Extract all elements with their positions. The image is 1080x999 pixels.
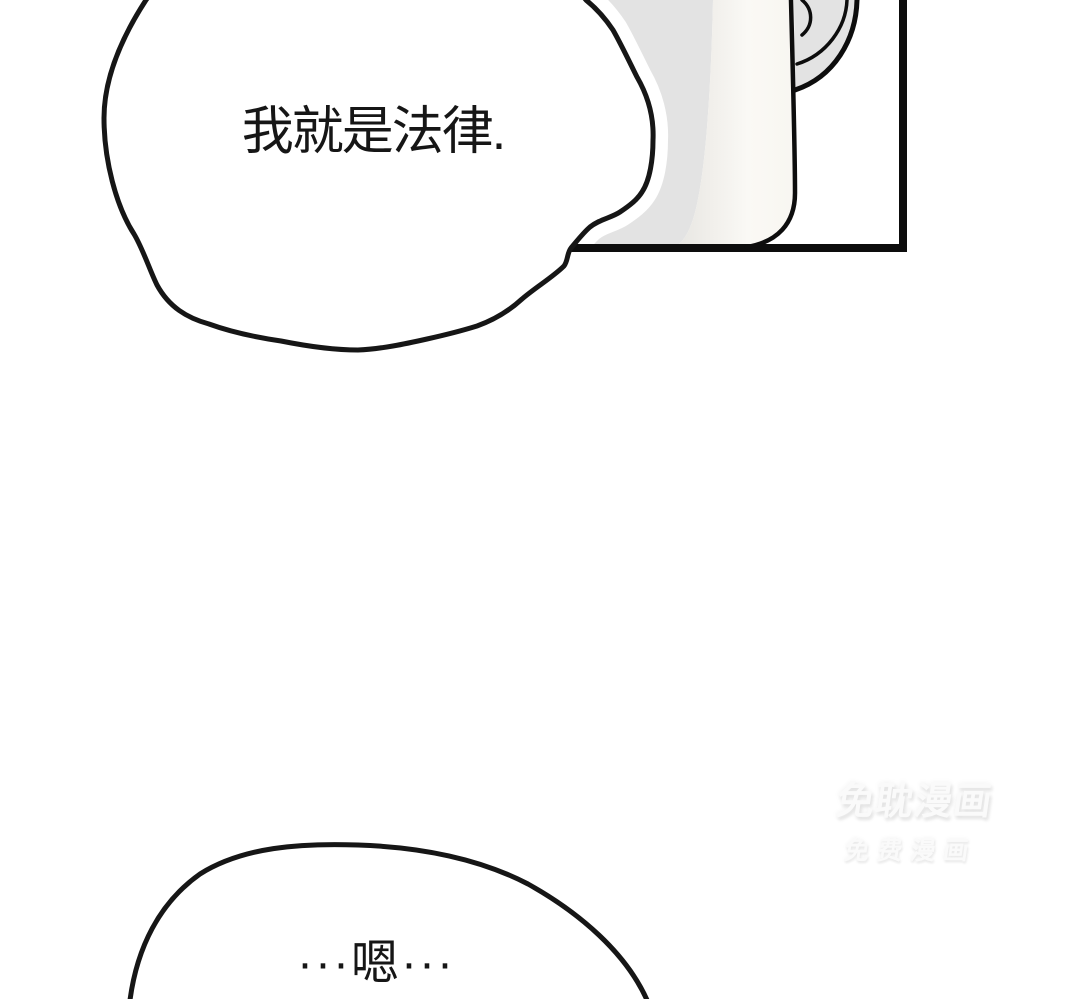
speech-bubble-bottom-text: ···嗯···: [126, 938, 626, 991]
watermark-line-1: 免耽漫画: [821, 770, 1009, 825]
watermark-line-2: 免费漫画: [815, 831, 1000, 867]
speech-bubble-top-text: 我就是法律.: [103, 104, 643, 161]
speech-bubble-top-shape: [104, 0, 653, 350]
watermark: 免耽漫画 免费漫画: [815, 770, 1009, 867]
comic-page: 我就是法律. ···嗯··· 免耽漫画 免费漫画: [0, 0, 1080, 999]
